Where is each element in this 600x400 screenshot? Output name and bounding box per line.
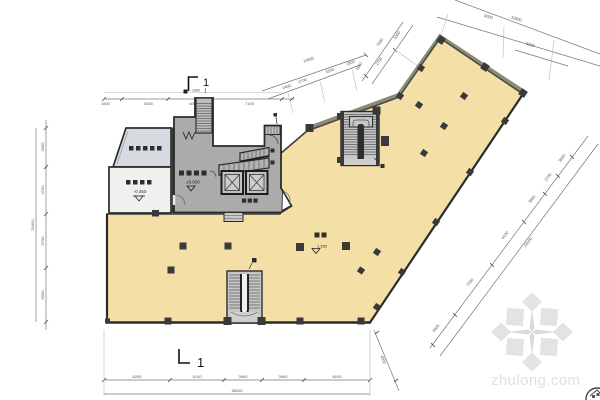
svg-text:6200: 6200 xyxy=(133,374,143,379)
svg-text:5000: 5000 xyxy=(144,101,154,106)
svg-text:20400: 20400 xyxy=(30,219,35,231)
svg-text:3900: 3900 xyxy=(239,374,249,379)
svg-text:±0.000: ±0.000 xyxy=(186,180,200,185)
svg-text:6100: 6100 xyxy=(333,374,343,379)
svg-text:1500: 1500 xyxy=(101,101,111,106)
svg-text:5700: 5700 xyxy=(40,236,45,246)
svg-text:4000: 4000 xyxy=(40,142,45,152)
svg-text:1: 1 xyxy=(203,77,209,89)
svg-text:1600: 1600 xyxy=(192,89,200,93)
svg-text:zhulong.com: zhulong.com xyxy=(491,372,580,389)
svg-text:4100: 4100 xyxy=(193,374,203,379)
svg-text:36200: 36200 xyxy=(231,388,243,393)
svg-text:-0.450: -0.450 xyxy=(134,189,147,194)
svg-text:7100: 7100 xyxy=(245,101,255,106)
svg-text:1: 1 xyxy=(204,89,207,95)
svg-text:4700: 4700 xyxy=(40,185,45,195)
svg-text:6000: 6000 xyxy=(40,290,45,300)
svg-text:3900: 3900 xyxy=(279,374,289,379)
svg-text:1: 1 xyxy=(197,355,204,370)
svg-text:1.150: 1.150 xyxy=(317,244,328,249)
